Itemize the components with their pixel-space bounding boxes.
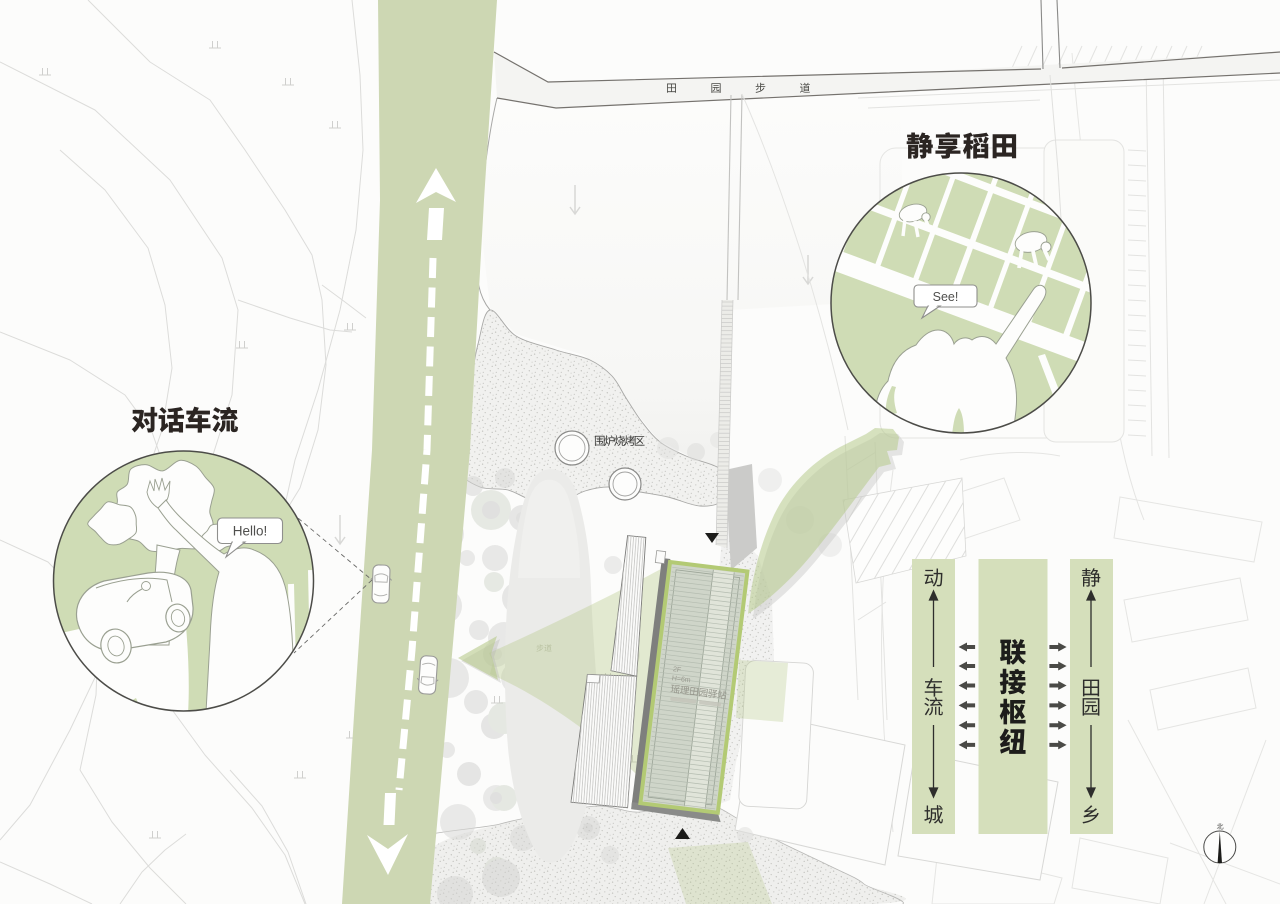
- svg-text:2F: 2F: [672, 666, 681, 674]
- svg-text:See!: See!: [933, 290, 959, 304]
- svg-text:Hello!: Hello!: [233, 524, 268, 539]
